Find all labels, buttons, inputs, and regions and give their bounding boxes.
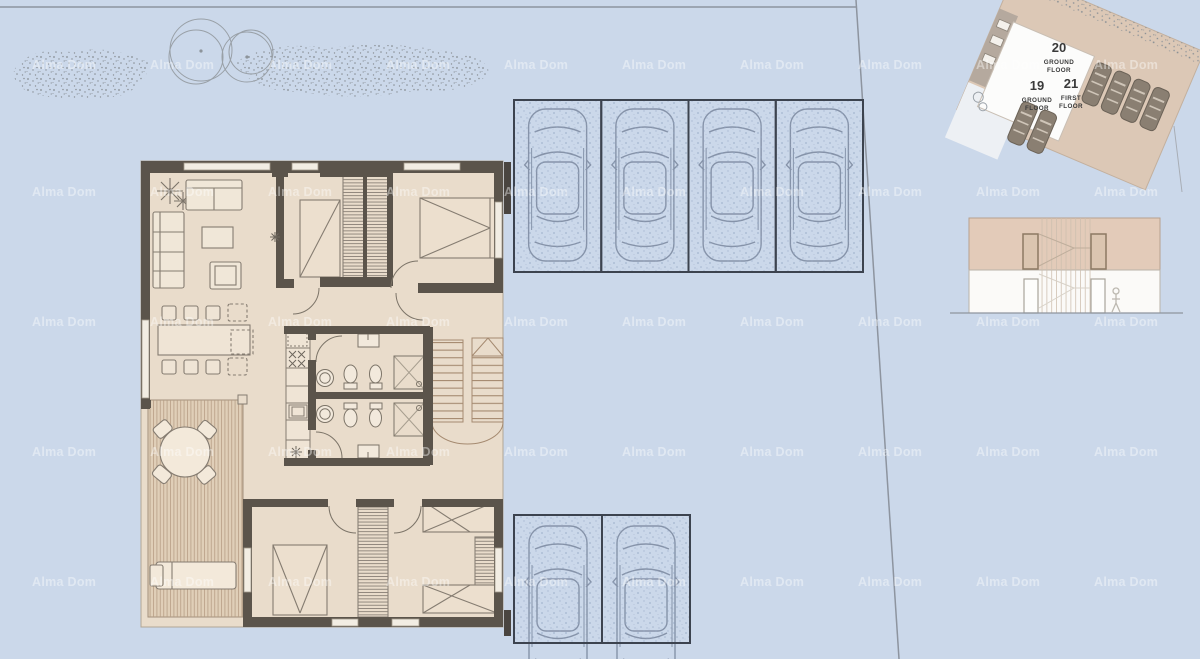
deck-corner-post: [238, 395, 247, 404]
bed-bottom-left: [273, 545, 327, 615]
toilet: [344, 365, 357, 389]
parking-row-bottom: [514, 515, 690, 659]
unit-19-floor: GROUND: [1022, 97, 1052, 104]
unit-20-number: 20: [1052, 40, 1066, 55]
unit-21-number: 21: [1064, 76, 1078, 91]
unit-19-number: 19: [1030, 78, 1044, 93]
washbasin: [317, 406, 334, 423]
bidet: [370, 403, 383, 427]
wardrobe-bottom-center: [358, 507, 388, 617]
floor-plan-image: 20 GROUND FLOOR 19 GROUND FLOOR 21 FIRST…: [0, 0, 1200, 659]
sofa-l: [153, 212, 184, 288]
unit-21-floor: FLOOR: [1059, 103, 1083, 110]
terrace-dining-set: [151, 419, 218, 486]
coffee-table: [202, 227, 233, 248]
dining-table: [158, 325, 250, 355]
wardrobe-bottom-right: [475, 537, 497, 585]
shrub-band: [236, 45, 488, 97]
terrace-deck: [148, 395, 247, 617]
shrub-band: [14, 50, 148, 100]
washbasin: [317, 370, 334, 387]
bed-bottom-right-2: [423, 585, 498, 613]
kitchen-unit: [286, 330, 310, 463]
unit-20-floor: GROUND: [1044, 59, 1074, 66]
parking-wall-stubs: [504, 162, 511, 636]
bed-middle: [300, 200, 340, 277]
elevation-drawing: [950, 218, 1183, 313]
bidet: [370, 365, 383, 389]
floor-plan: [141, 161, 503, 627]
parking-row-top: [514, 100, 863, 272]
unit-20-floor: FLOOR: [1047, 67, 1071, 74]
unit-19-floor: FLOOR: [1025, 105, 1049, 112]
bed-top-right: [420, 198, 497, 258]
site-plan-inset: 20 GROUND FLOOR 19 GROUND FLOOR 21 FIRST…: [945, 0, 1200, 217]
plan-drawing: 20 GROUND FLOOR 19 GROUND FLOOR 21 FIRST…: [0, 0, 1200, 659]
toilet: [344, 403, 357, 427]
sun-lounger: [150, 562, 236, 589]
unit-21-floor: FIRST: [1061, 95, 1081, 102]
stair-glazing: [1039, 218, 1092, 313]
